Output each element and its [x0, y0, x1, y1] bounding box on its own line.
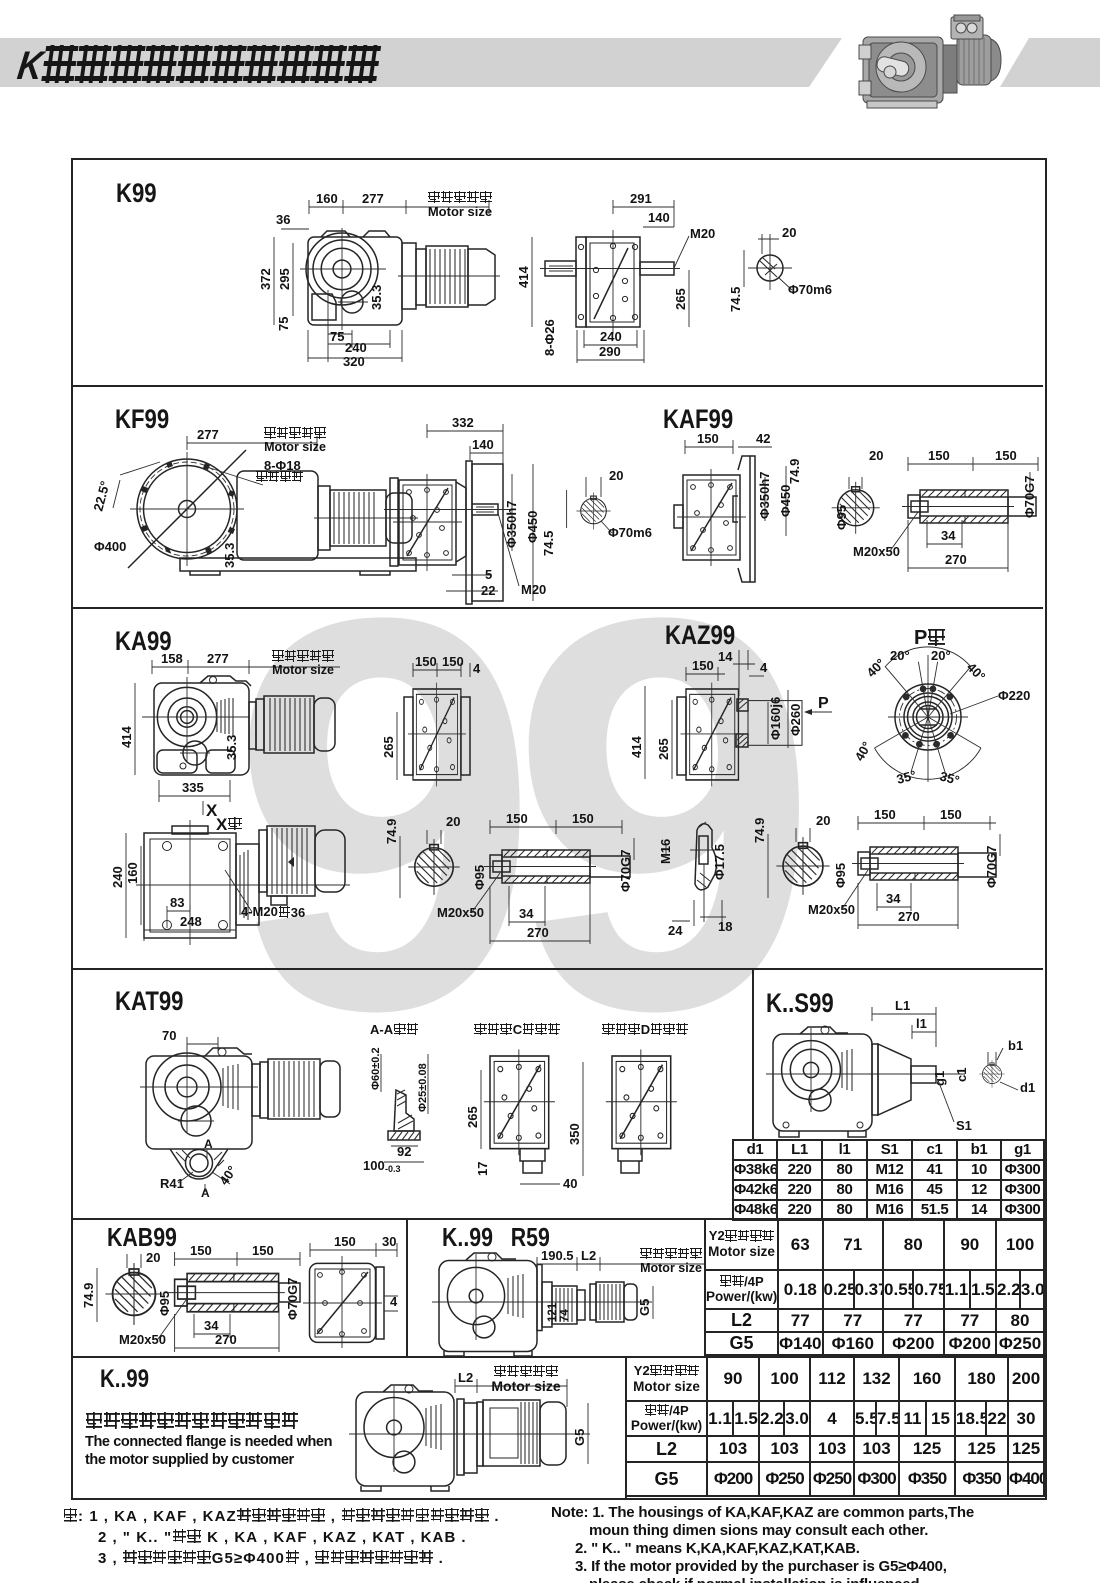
svg-text:-0.3: -0.3: [385, 1164, 401, 1174]
svg-text:240: 240: [600, 329, 622, 344]
svg-text:277: 277: [207, 651, 229, 666]
svg-text:335: 335: [182, 780, 204, 795]
svg-text:35°: 35°: [895, 767, 918, 787]
svg-text:4: 4: [473, 661, 481, 676]
svg-text:74.9: 74.9: [81, 1283, 96, 1308]
svg-text:240: 240: [110, 866, 125, 888]
svg-text:265: 265: [673, 288, 688, 310]
svg-text:74.5: 74.5: [541, 531, 556, 556]
svg-text:150: 150: [572, 811, 594, 826]
svg-text:34: 34: [886, 891, 901, 906]
svg-text:Φ17.5: Φ17.5: [712, 844, 727, 880]
svg-text:74.5: 74.5: [728, 287, 743, 312]
svg-text:140: 140: [472, 437, 494, 452]
svg-text:74.9: 74.9: [384, 819, 399, 844]
svg-text:150: 150: [252, 1243, 274, 1258]
svg-text:35.3: 35.3: [222, 543, 237, 568]
svg-text:295: 295: [277, 268, 292, 290]
svg-text:M20: M20: [690, 226, 715, 241]
svg-text:Φ220: Φ220: [998, 688, 1030, 703]
svg-text:40°: 40°: [864, 656, 889, 681]
svg-text:35.3: 35.3: [369, 285, 384, 310]
svg-text:L1: L1: [895, 998, 910, 1013]
svg-text:270: 270: [527, 925, 549, 940]
svg-text:150: 150: [692, 658, 714, 673]
svg-text:150: 150: [995, 448, 1017, 463]
svg-text:270: 270: [945, 552, 967, 567]
svg-text:G5: G5: [637, 1299, 652, 1316]
svg-text:74.9: 74.9: [787, 459, 802, 484]
svg-text:Φ25±0.08: Φ25±0.08: [417, 1063, 429, 1112]
svg-text:L2: L2: [458, 1370, 473, 1385]
svg-text:L2: L2: [581, 1248, 596, 1263]
svg-text:Φ70G7: Φ70G7: [285, 1278, 300, 1320]
svg-text:414: 414: [516, 266, 531, 288]
svg-text:20: 20: [446, 814, 460, 829]
svg-text:8-Φ26: 8-Φ26: [542, 319, 557, 356]
svg-text:40°: 40°: [852, 739, 875, 764]
svg-text:20°: 20°: [931, 648, 951, 663]
svg-text:4-M20: 4-M20: [241, 904, 278, 919]
svg-text:74: 74: [559, 1309, 571, 1322]
svg-text:20°: 20°: [890, 648, 910, 663]
svg-text:l1: l1: [916, 1016, 927, 1031]
svg-text:150: 150: [442, 654, 464, 669]
svg-text:83: 83: [170, 895, 184, 910]
svg-text:320: 320: [343, 354, 365, 369]
svg-text:Φ95: Φ95: [472, 865, 487, 890]
svg-text:Φ160j6: Φ160j6: [768, 697, 783, 740]
svg-text:270: 270: [898, 909, 920, 924]
svg-text:248: 248: [180, 914, 202, 929]
svg-text:5: 5: [485, 567, 492, 582]
svg-text:17: 17: [475, 1162, 490, 1176]
svg-text:160: 160: [316, 191, 338, 206]
svg-text:92: 92: [397, 1144, 411, 1159]
svg-text:M20x50: M20x50: [437, 905, 484, 920]
svg-text:160: 160: [125, 862, 140, 884]
svg-text:40°: 40°: [216, 1163, 240, 1188]
svg-text:150: 150: [334, 1234, 356, 1249]
svg-text:265: 265: [465, 1106, 480, 1128]
svg-text:34: 34: [204, 1318, 219, 1333]
svg-text:414: 414: [629, 736, 644, 758]
svg-text:70: 70: [162, 1028, 176, 1043]
svg-text:c1: c1: [954, 1068, 969, 1082]
svg-text:G5: G5: [572, 1429, 587, 1446]
svg-text:18: 18: [718, 919, 732, 934]
svg-text:150: 150: [697, 431, 719, 446]
svg-text:M20x50: M20x50: [119, 1332, 166, 1347]
svg-text:Φ95: Φ95: [157, 1291, 172, 1316]
svg-text:20: 20: [869, 448, 883, 463]
svg-text:40: 40: [563, 1176, 577, 1191]
svg-text:265: 265: [656, 738, 671, 760]
svg-text:372: 372: [258, 268, 273, 290]
svg-text:Φ450: Φ450: [778, 485, 793, 517]
svg-text:350: 350: [567, 1123, 582, 1145]
svg-text:150: 150: [506, 811, 528, 826]
svg-text:S1: S1: [956, 1118, 972, 1133]
svg-text:100: 100: [363, 1158, 385, 1173]
svg-text:14: 14: [718, 649, 733, 664]
svg-text:332: 332: [452, 415, 474, 430]
svg-text:b1: b1: [1008, 1038, 1023, 1053]
svg-text:75: 75: [330, 329, 344, 344]
svg-text:150: 150: [415, 654, 437, 669]
svg-text:20: 20: [146, 1250, 160, 1265]
svg-text:M20: M20: [521, 582, 546, 597]
svg-text:Φ95: Φ95: [834, 505, 849, 530]
svg-text:Φ70G7: Φ70G7: [984, 846, 999, 888]
svg-text:A: A: [201, 1186, 210, 1200]
svg-text:277: 277: [197, 427, 219, 442]
svg-text:240: 240: [345, 340, 367, 355]
svg-text:20: 20: [816, 813, 830, 828]
svg-text:36: 36: [276, 212, 290, 227]
svg-text:4: 4: [760, 660, 768, 675]
svg-text:35.3: 35.3: [224, 735, 239, 760]
svg-text:150: 150: [190, 1243, 212, 1258]
svg-text:Φ450: Φ450: [525, 511, 540, 543]
svg-text:150: 150: [928, 448, 950, 463]
svg-text:42: 42: [756, 431, 770, 446]
svg-text:150: 150: [874, 807, 896, 822]
svg-text:Φ400: Φ400: [94, 539, 126, 554]
svg-text:P: P: [818, 695, 829, 712]
svg-text:75: 75: [276, 317, 291, 331]
svg-text:291: 291: [630, 191, 652, 206]
svg-text:22: 22: [481, 583, 495, 598]
svg-text:Φ95: Φ95: [833, 863, 848, 888]
svg-text:Φ70G7: Φ70G7: [1022, 476, 1037, 518]
svg-text:277: 277: [362, 191, 384, 206]
svg-text:24: 24: [668, 923, 683, 938]
svg-text:414: 414: [119, 726, 134, 748]
svg-text:Φ260: Φ260: [788, 704, 803, 736]
svg-text:R41: R41: [160, 1176, 184, 1191]
svg-text:158: 158: [161, 651, 183, 666]
svg-text:Φ70m6: Φ70m6: [608, 525, 652, 540]
svg-text:30: 30: [382, 1234, 396, 1249]
svg-text:265: 265: [381, 736, 396, 758]
svg-text:20: 20: [782, 225, 796, 240]
svg-text:270: 270: [215, 1332, 237, 1347]
svg-text:34: 34: [941, 528, 956, 543]
svg-text:X: X: [216, 815, 228, 834]
svg-text:A: A: [204, 1137, 213, 1151]
svg-text:Φ70m6: Φ70m6: [788, 282, 832, 297]
svg-text:34: 34: [519, 906, 534, 921]
svg-text:M20x50: M20x50: [808, 902, 855, 917]
svg-text:290: 290: [599, 344, 621, 359]
svg-text:Φ70G7: Φ70G7: [618, 850, 633, 892]
svg-text:20: 20: [609, 468, 623, 483]
svg-text:Φ350h7: Φ350h7: [757, 471, 772, 519]
svg-text:d1: d1: [1020, 1080, 1035, 1095]
svg-text:74.9: 74.9: [752, 818, 767, 843]
svg-text:22.5°: 22.5°: [90, 479, 112, 512]
svg-text:140: 140: [648, 210, 670, 225]
svg-text:M16: M16: [658, 839, 673, 864]
svg-text:Φ60±0.2: Φ60±0.2: [370, 1047, 382, 1090]
svg-text:121: 121: [547, 1302, 559, 1322]
svg-text:150: 150: [940, 807, 962, 822]
svg-text:190.5: 190.5: [541, 1248, 574, 1263]
